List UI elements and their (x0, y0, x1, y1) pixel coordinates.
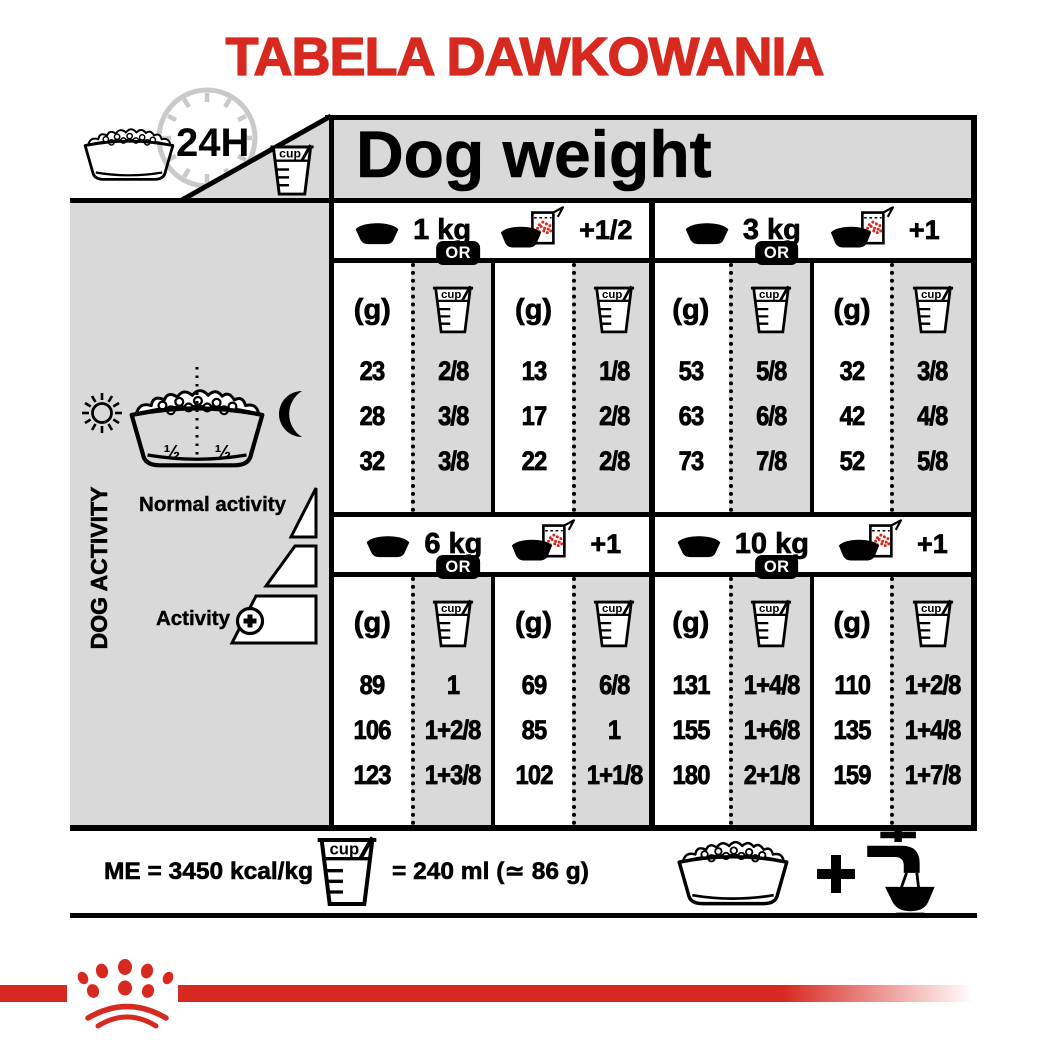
dose-value: 1+1/8 (576, 753, 653, 798)
grams-column-bag: (g)110135159 (810, 577, 891, 825)
measuring-cup-icon (593, 285, 635, 335)
dose-value: 131 (653, 663, 730, 708)
dose-value: 89 (334, 663, 411, 708)
or-badge: OR (436, 555, 480, 579)
cups-column-bag: 3/84/85/8 (890, 263, 971, 512)
or-label: OR (764, 244, 790, 262)
dose-value: 159 (814, 753, 891, 798)
grams-header: (g) (834, 263, 871, 349)
weight-section: 1 kg +1/2 OR (g)232832 2/83/83/8 (g)1317… (334, 203, 653, 512)
measuring-cup-icon (432, 599, 474, 649)
food-bowl-icon (365, 530, 411, 558)
dose-value: 85 (495, 708, 572, 753)
grams-header: (g) (354, 263, 391, 349)
dose-value: 102 (495, 753, 572, 798)
measuring-cup-icon (593, 599, 635, 649)
food-bowl-icon (354, 217, 400, 245)
cups-column-bowl: 2/83/83/8 (411, 263, 492, 512)
bowl-plus-bag-icon (838, 519, 908, 567)
dog-weight-label: Dog weight (356, 116, 712, 192)
grams-column-bowl: (g)232832 (334, 263, 411, 512)
dose-value: 1+7/8 (894, 753, 971, 798)
or-badge: OR (755, 241, 799, 265)
moon-icon (276, 389, 316, 439)
activity-label: Activity (98, 607, 230, 631)
weight-section: 6 kg +1 OR (g)89106123 11+2/81+3/8 (g)69… (334, 517, 653, 825)
dose-value: 106 (334, 708, 411, 753)
header-decoration: 24H (60, 80, 340, 210)
measuring-cup-icon (270, 145, 313, 194)
bag-extra-label: +1 (909, 215, 940, 246)
grams-column-bag: (g)6985102 (491, 577, 572, 825)
dose-value: 53 (653, 349, 730, 394)
dose-value: 32 (334, 439, 411, 484)
divider (70, 198, 977, 203)
dose-value: 63 (653, 394, 730, 439)
measuring-cup-icon (432, 285, 474, 335)
bowl-plus-bag-icon (511, 519, 581, 567)
dose-value: 2/8 (576, 394, 653, 439)
page-title: TABELA DAWKOWANIA (0, 26, 1049, 88)
royal-canin-paw-logo (73, 958, 183, 1036)
grams-header: (g) (515, 577, 552, 663)
plus-circle-icon (238, 609, 263, 634)
dog-activity-axis-label: DOG ACTIVITY (86, 473, 112, 663)
divider (971, 115, 977, 831)
divider (70, 913, 977, 918)
dose-value: 1+6/8 (733, 708, 810, 753)
food-bowl-icon (653, 836, 813, 909)
dose-value: 1+4/8 (733, 663, 810, 708)
cups-column-bowl: 11+2/81+3/8 (411, 577, 492, 825)
dose-value: 13 (495, 349, 572, 394)
measuring-cup-icon (912, 285, 954, 335)
measuring-cup-icon (316, 836, 378, 908)
bag-extra-label: +1 (590, 529, 621, 560)
dosing-columns: (g)232832 2/83/83/8 (g)131722 1/82/82/8 (334, 263, 653, 512)
cups-column-bag: 1/82/82/8 (572, 263, 653, 512)
dose-value: 4/8 (894, 394, 971, 439)
dose-value: 1+2/8 (415, 708, 492, 753)
plus-icon (817, 855, 855, 893)
divider (325, 115, 977, 120)
dosing-columns: (g)536373 5/86/87/8 (g)324252 3/84/85/8 (653, 263, 972, 512)
sun-icon (78, 389, 126, 437)
dose-value: 73 (653, 439, 730, 484)
dog-weight-header: Dog weight (334, 120, 971, 198)
weight-band: 1 kg +1/2 OR (334, 203, 653, 258)
dose-value: 42 (814, 394, 891, 439)
or-label: OR (445, 244, 471, 262)
grams-column-bowl: (g)89106123 (334, 577, 411, 825)
energy-label: ME = 3450 kcal/kg (104, 831, 313, 913)
dosing-columns: (g)131155180 1+4/81+6/82+1/8 (g)11013515… (653, 577, 972, 825)
water-tap-icon (860, 827, 940, 915)
footer-info-row: ME = 3450 kcal/kg = 240 ml (≃ 86 g) (70, 831, 977, 913)
dose-value: 32 (814, 349, 891, 394)
dose-value: 52 (814, 439, 891, 484)
food-bowl-icon (676, 530, 722, 558)
weight-band: 3 kg +1 OR (653, 203, 972, 258)
cups-column-bag: 6/811+1/8 (572, 577, 653, 825)
dose-value: 2/8 (576, 439, 653, 484)
dosing-columns: (g)89106123 11+2/81+3/8 (g)6985102 6/811… (334, 577, 653, 825)
activity-ramps-icon (228, 481, 322, 649)
grams-column-bowl: (g)536373 (653, 263, 730, 512)
or-badge: OR (436, 241, 480, 265)
dose-value: 1/8 (576, 349, 653, 394)
dose-value: 5/8 (733, 349, 810, 394)
dose-value: 180 (653, 753, 730, 798)
grams-header: (g) (672, 263, 709, 349)
cups-column-bowl: 1+4/81+6/82+1/8 (729, 577, 810, 825)
divider (649, 203, 655, 825)
dose-value: 2/8 (415, 349, 492, 394)
dose-value: 123 (334, 753, 411, 798)
cup-equivalence-label: = 240 ml (≃ 86 g) (392, 831, 589, 913)
dosing-table-page: cup (0, 0, 1049, 1049)
cups-column-bowl: 5/86/87/8 (729, 263, 810, 512)
measuring-cup-icon (912, 599, 954, 649)
food-bowl-icon (684, 217, 730, 245)
dose-value: 28 (334, 394, 411, 439)
dose-value: 17 (495, 394, 572, 439)
dose-value: 1+3/8 (415, 753, 492, 798)
bag-extra-label: +1/2 (579, 215, 632, 246)
cups-column-bag: 1+2/81+4/81+7/8 (890, 577, 971, 825)
half-left-label: ½ (164, 442, 181, 464)
red-stripe (178, 985, 973, 1002)
clock-24h-label: 24H (176, 121, 249, 165)
dose-value: 1+4/8 (894, 708, 971, 753)
dose-value: 110 (814, 663, 891, 708)
weight-band: 10 kg +1 OR (653, 517, 972, 572)
grams-header: (g) (354, 577, 391, 663)
dose-value: 6/8 (576, 663, 653, 708)
dose-value: 1 (576, 708, 653, 753)
weight-band: 6 kg +1 OR (334, 517, 653, 572)
bag-extra-label: +1 (917, 529, 948, 560)
or-badge: OR (755, 555, 799, 579)
dose-value: 3/8 (415, 439, 492, 484)
dose-value: 6/8 (733, 394, 810, 439)
dose-value: 22 (495, 439, 572, 484)
grams-column-bowl: (g)131155180 (653, 577, 730, 825)
dog-activity-sidebar: ½ ½ DOG ACTIVITY Normal activity Activit… (70, 203, 330, 825)
dose-value: 23 (334, 349, 411, 394)
dose-value: 155 (653, 708, 730, 753)
dose-value: 5/8 (894, 439, 971, 484)
grams-header: (g) (834, 577, 871, 663)
grams-header: (g) (515, 263, 552, 349)
dose-value: 3/8 (415, 394, 492, 439)
red-stripe (0, 985, 67, 1002)
or-label: OR (445, 558, 471, 576)
dose-value: 1+2/8 (894, 663, 971, 708)
grams-header: (g) (672, 577, 709, 663)
measuring-cup-icon (750, 599, 792, 649)
dose-value: 2+1/8 (733, 753, 810, 798)
bowl-plus-bag-icon (500, 206, 570, 254)
dose-value: 1 (415, 663, 492, 708)
dose-value: 69 (495, 663, 572, 708)
half-half-bowl-icon: ½ ½ (126, 367, 268, 481)
half-right-label: ½ (215, 442, 232, 464)
grams-column-bag: (g)324252 (810, 263, 891, 512)
weight-section: 10 kg +1 OR (g)131155180 1+4/81+6/82+1/8… (653, 517, 972, 825)
dose-value: 135 (814, 708, 891, 753)
bowl-plus-bag-icon (830, 206, 900, 254)
dose-value: 3/8 (894, 349, 971, 394)
or-label: OR (764, 558, 790, 576)
divider (329, 115, 334, 831)
grams-column-bag: (g)131722 (491, 263, 572, 512)
dose-value: 7/8 (733, 439, 810, 484)
weight-section: 3 kg +1 OR (g)536373 5/86/87/8 (g)324252… (653, 203, 972, 512)
measuring-cup-icon (750, 285, 792, 335)
